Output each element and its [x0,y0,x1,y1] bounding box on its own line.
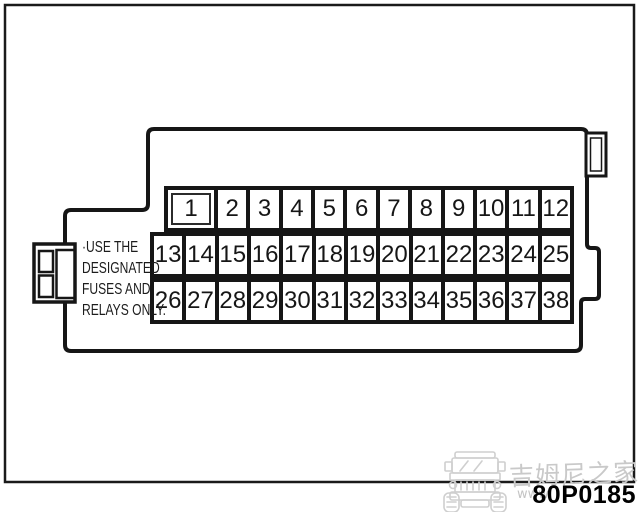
fuse-cell-27: 27 [186,282,214,320]
fuse-cell-3: 3 [250,190,278,228]
fuse-cell-21: 21 [413,236,441,274]
fuse-row-middle: 13141516171819202122232425 [150,232,574,278]
fuse-cell-15: 15 [219,236,247,274]
note-line: FUSES AND [82,279,168,300]
fuse-cell-30: 30 [283,282,311,320]
fuse-cell-11: 11 [509,190,537,228]
mounting-tab-icon [586,133,606,176]
fuse-cell-inner-box: 1 [171,193,211,225]
fuse-cell-24: 24 [509,236,537,274]
fuse-cell-12: 12 [542,190,570,228]
fuse-cell-35: 35 [445,282,473,320]
fuse-cell-23: 23 [477,236,505,274]
fuse-cell-17: 17 [283,236,311,274]
note-line: DESIGNATED [82,258,168,279]
fuse-cell-20: 20 [380,236,408,274]
fuse-cell-19: 19 [348,236,376,274]
fuse-cell-2: 2 [218,190,246,228]
fuse-cell-31: 31 [316,282,344,320]
fuse-cell-38: 38 [542,282,570,320]
fuse-cell-33: 33 [380,282,408,320]
fuse-cell-22: 22 [445,236,473,274]
fuse-cell-32: 32 [348,282,376,320]
fuse-cell-25: 25 [542,236,570,274]
fuse-cell-4: 4 [283,190,311,228]
fuse-cell-1: 1 [168,190,214,228]
fuse-row-bottom: 26272829303132333435363738 [150,278,574,324]
fuse-cell-5: 5 [315,190,343,228]
fuse-cell-7: 7 [380,190,408,228]
note-line: ·USE THE [82,237,168,258]
fuse-cell-36: 36 [477,282,505,320]
fuse-cell-29: 29 [251,282,279,320]
fuse-row-top: 123456789101112 [164,186,574,232]
fuse-cell-9: 9 [445,190,473,228]
note-line: RELAYS ONLY. [82,300,168,321]
connector-icon [34,244,75,302]
fuse-cell-10: 10 [477,190,505,228]
fuse-cell-28: 28 [219,282,247,320]
fuse-cell-14: 14 [186,236,214,274]
fuse-cell-34: 34 [413,282,441,320]
fuse-cell-16: 16 [251,236,279,274]
fuse-box-diagram-page: 123456789101112 131415161718192021222324… [0,0,642,512]
fuse-cell-18: 18 [316,236,344,274]
designated-fuses-note: ·USE THE DESIGNATED FUSES AND RELAYS ONL… [82,237,168,321]
fuse-cell-8: 8 [412,190,440,228]
fuse-cell-37: 37 [509,282,537,320]
figure-code: 80P0185 [532,481,636,510]
fuse-cell-6: 6 [347,190,375,228]
